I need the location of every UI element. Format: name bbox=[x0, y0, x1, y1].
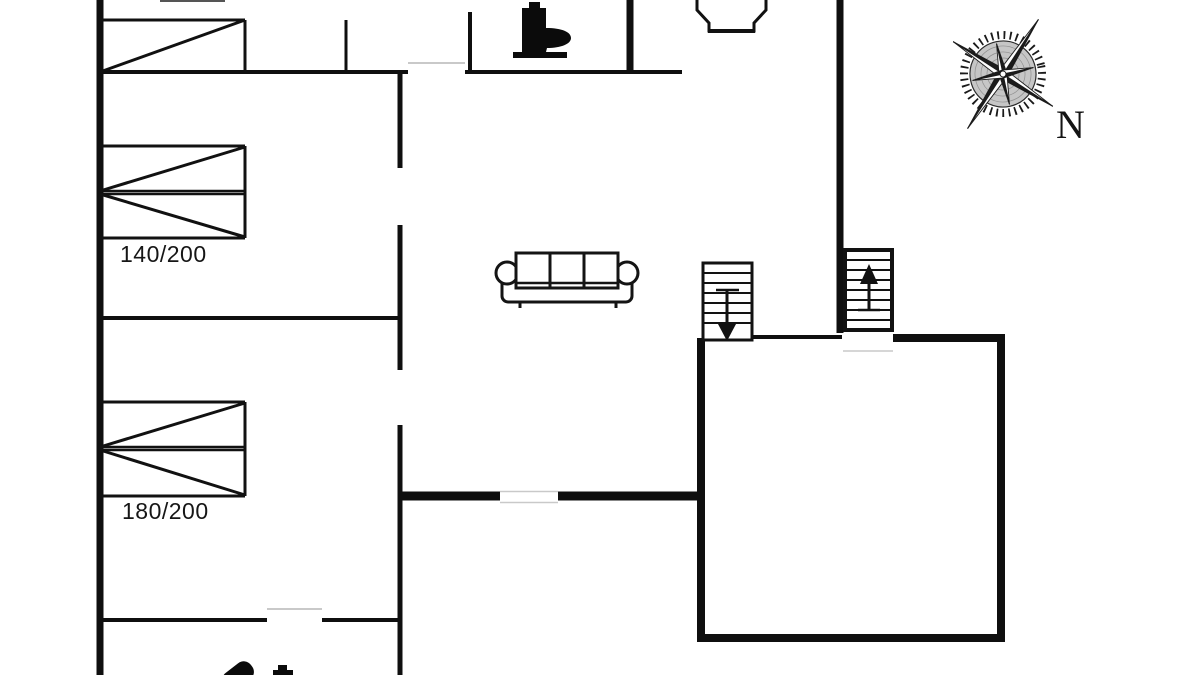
floorplan-drawing bbox=[0, 0, 1200, 675]
walls bbox=[100, 0, 1005, 675]
compass-north-label: N bbox=[1056, 101, 1085, 148]
stairs-down-icon bbox=[703, 263, 752, 341]
stairs-up-icon bbox=[845, 250, 892, 330]
tap-icon bbox=[273, 665, 293, 675]
single-bed-icon bbox=[100, 20, 245, 72]
bed-180-size-label: 180/200 bbox=[122, 498, 209, 525]
fireplace-icon bbox=[697, 0, 766, 31]
double-bed-180-icon bbox=[100, 402, 245, 496]
compass-rose-icon bbox=[948, 19, 1057, 128]
floorplan-canvas: 140/200 180/200 N bbox=[0, 0, 1200, 675]
double-bed-140-icon bbox=[100, 146, 245, 238]
toilet-icon bbox=[513, 2, 571, 58]
sofa-icon bbox=[496, 253, 638, 308]
bed-140-size-label: 140/200 bbox=[120, 241, 207, 268]
shower-head-icon bbox=[218, 658, 257, 675]
